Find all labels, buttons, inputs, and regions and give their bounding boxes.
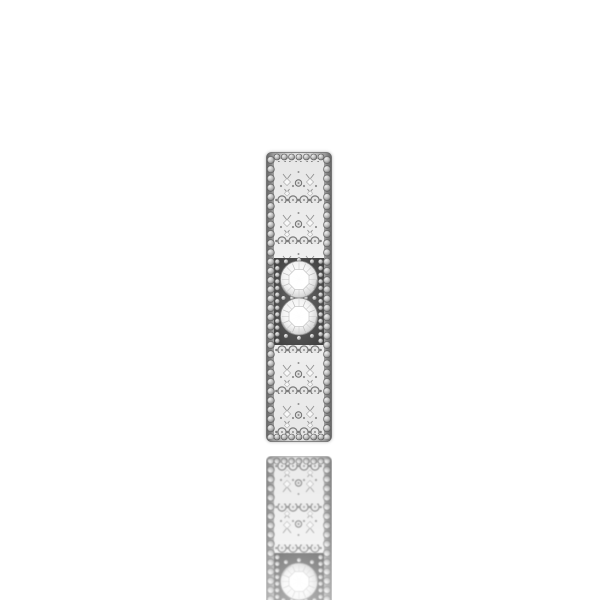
- pave-section-bottom: [274, 345, 324, 434]
- jewelry-bar: [266, 152, 332, 442]
- milgrain-edge-right: [323, 155, 332, 439]
- large-diamond-1: [281, 261, 318, 298]
- jewelry-bar-drawing: [267, 153, 332, 442]
- product-photo-canvas: [0, 0, 600, 600]
- reflection: [266, 456, 332, 600]
- pave-section-top: [274, 161, 324, 258]
- jewelry-bar-image: [266, 152, 332, 442]
- jewelry-bar-reflection-image: [266, 456, 332, 600]
- large-diamond-2: [281, 298, 318, 335]
- milgrain-edge-left: [267, 155, 276, 439]
